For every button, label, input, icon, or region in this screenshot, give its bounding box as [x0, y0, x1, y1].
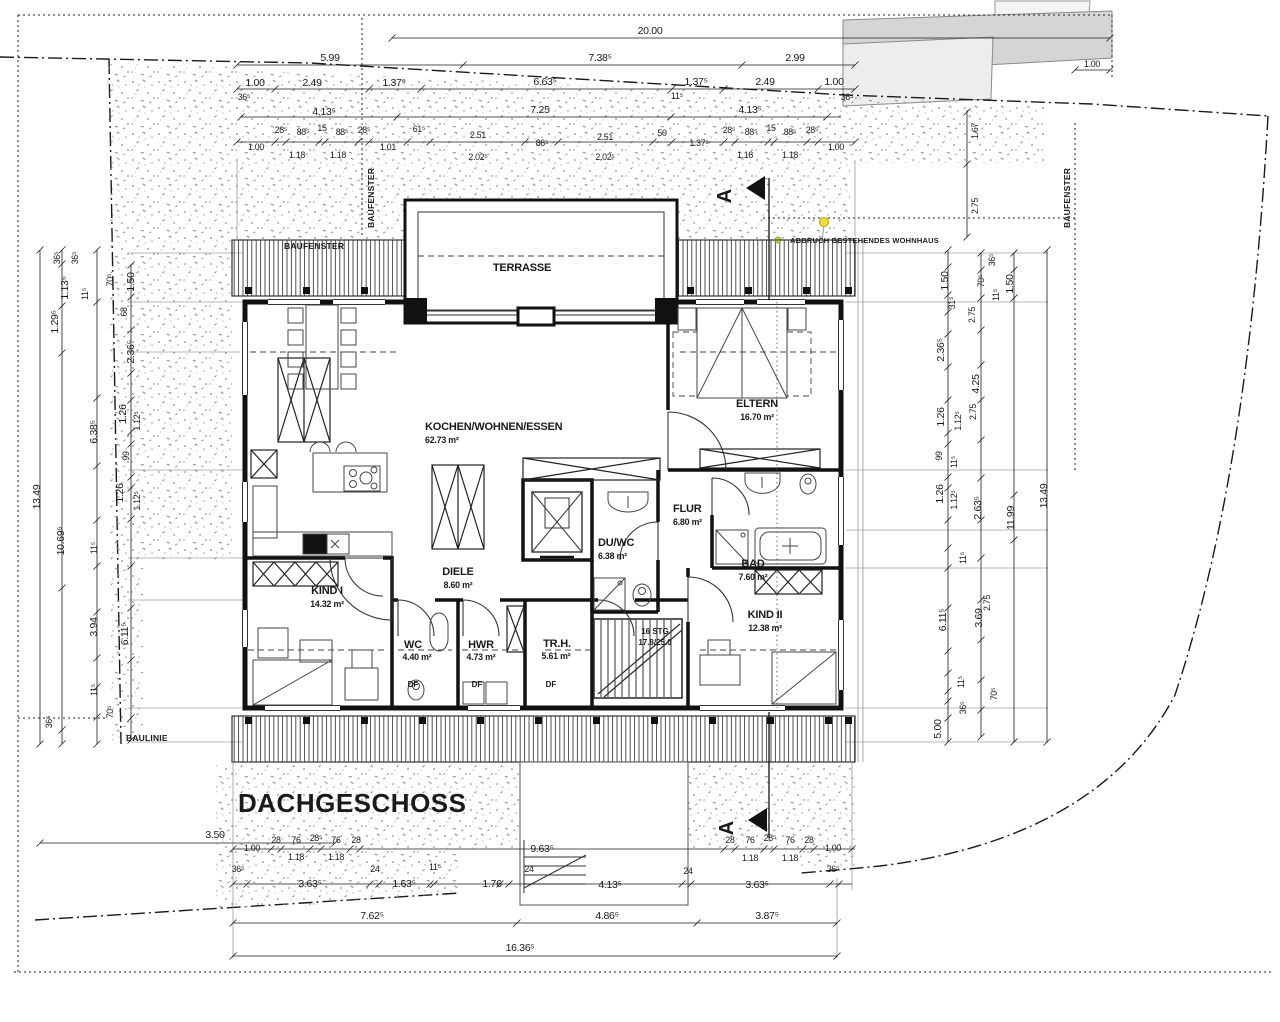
dimension-label: 70⁵ [976, 274, 986, 287]
room-area-wc: 4.40 m² [403, 652, 432, 662]
room-label-kind1: KIND I [311, 585, 343, 597]
window [333, 297, 385, 307]
window [757, 297, 805, 307]
dimension-label: 11.99 [1005, 506, 1017, 530]
dimension-label: 68 [119, 307, 129, 317]
dimension-label: 88⁵ [336, 127, 349, 137]
stairs [594, 619, 682, 698]
dimension-label: 36⁵ [238, 92, 251, 102]
window [240, 322, 250, 395]
dimension-label: 1.18 [328, 852, 344, 862]
dimension-label: 3.87⁵ [755, 910, 778, 922]
dimension-label: 6.11⁵ [937, 609, 949, 632]
room-label-terrasse: TERRASSE [493, 262, 551, 274]
dimension-label: 86⁵ [536, 138, 549, 148]
dimension-label: 2.51 [470, 130, 486, 140]
dimension-label: 1.18 [782, 150, 798, 160]
dimension-label: 28 [271, 835, 281, 845]
room-area-flur: 6.80 m² [673, 517, 702, 527]
df-label-trh: DF [546, 680, 557, 689]
baufenster-label-left: BAUFENSTER [366, 168, 376, 228]
baulinie-label: BAULINIE [126, 733, 168, 743]
dimension-label: 70⁵ [989, 687, 999, 700]
dimension-label: 70⁵ [105, 705, 115, 718]
dimension-label: 2.36⁵ [125, 340, 137, 363]
window [836, 620, 846, 690]
dimension-label: 76 [331, 835, 341, 845]
dimension-label: 1.00 [245, 77, 265, 89]
dimension-label: 6.63⁵ [533, 76, 556, 88]
dimension-label: 10.69⁵ [55, 527, 67, 556]
dimension-label: 11⁵ [949, 455, 959, 468]
dimension-label: 5.00 [932, 719, 944, 739]
room-area-kind1: 14.32 m² [310, 599, 344, 609]
neighbor-buildings [843, 1, 1112, 106]
dimension-label: 1.12⁵ [949, 490, 959, 510]
dimension-label: 3.50 [205, 829, 225, 841]
dimension-label: 2.02⁵ [595, 152, 615, 162]
window [240, 482, 250, 522]
dimension-label: 1.26 [935, 407, 947, 427]
dimension-label: 1.12⁵ [953, 411, 963, 431]
dimension-label: 28 [351, 835, 361, 845]
dimension-label: 1.37⁵ [382, 77, 405, 89]
dimension-label: 1.37⁵ [689, 138, 709, 148]
dimension-label: 76 [291, 835, 301, 845]
dimension-label: 6.11⁵ [119, 623, 131, 646]
dimension-label: 50 [657, 128, 667, 138]
dimension-label: 28⁵ [275, 125, 288, 135]
dimension-label: 4.25 [970, 374, 982, 394]
room-area-hwr: 4.73 m² [467, 652, 496, 662]
baufenster-label-top: BAUFENSTER [284, 241, 344, 251]
dimension-label: 1.37⁵ [684, 76, 707, 88]
baufenster-label-right: BAUFENSTER [1062, 168, 1072, 228]
dimension-label: 36⁵ [827, 864, 840, 874]
dimension-label: 28⁵ [764, 833, 777, 843]
dimension-label: 36⁵ [958, 701, 968, 714]
room-label-hwr: HWR [468, 639, 494, 651]
dimension-label: 4.13⁵ [598, 879, 621, 891]
abbruch-label: ABBRUCH BESTEHENDES WOHNHAUS [790, 236, 939, 245]
dimension-label: 1.18 [742, 853, 758, 863]
room-label-kind2: KIND II [748, 609, 783, 621]
dimension-label: 13.49 [31, 484, 43, 509]
dimension-label: 1.18 [288, 852, 304, 862]
dimension-label: 61⁵ [413, 124, 426, 134]
dimension-label: 15 [317, 123, 327, 133]
dimension-label: 1.50 [939, 271, 951, 291]
dimension-label: 7.62⁵ [360, 910, 383, 922]
room-label-wc: WC [404, 639, 422, 651]
dimension-label: 1.00 [825, 843, 841, 853]
dimension-label: 28 [804, 835, 814, 845]
room-label-diele: DIELE [442, 566, 473, 578]
dimension-label: 16.36⁵ [506, 942, 535, 954]
room-label-eltern: ELTERN [736, 398, 778, 410]
dimension-label: 88⁵ [784, 127, 797, 137]
dimension-label: 4.13⁵ [312, 106, 335, 118]
dimension-label: 11⁵ [80, 287, 90, 300]
dimension-label: 28 [725, 835, 735, 845]
dimension-label: 2.02⁵ [468, 152, 488, 162]
dimension-label: 36⁵ [70, 251, 80, 264]
room-label-duwc: DU/WC [598, 537, 635, 549]
dimension-label: 2.51 [597, 132, 613, 142]
dimension-label: 76 [745, 835, 755, 845]
dimension-label: 11⁵ [89, 683, 99, 696]
dimension-label: 1.12⁵ [132, 491, 142, 511]
floorplan-sheet: A A 20.005.997.38⁵2.991.002.491.37⁵6.63⁵… [0, 0, 1280, 1022]
dimension-label: 31⁵ [947, 296, 957, 309]
dimension-label: 1.67 [970, 123, 980, 139]
dimension-label: 13.49 [1038, 483, 1050, 508]
dimension-label: 88⁵ [745, 127, 758, 137]
dimension-label: 1.00 [244, 843, 260, 853]
window [836, 320, 846, 390]
dimension-label: 11⁵ [429, 862, 442, 872]
room-label-kochen: KOCHEN/WOHNEN/ESSEN [425, 421, 563, 433]
dimension-label: 1.00 [248, 142, 264, 152]
dimension-label: 36⁵ [44, 715, 54, 728]
dimension-label: 24 [370, 864, 380, 874]
dimension-label: 1.29⁵ [49, 310, 61, 333]
dimension-label: 1.63⁵ [392, 878, 415, 890]
dimension-label: 36⁵ [52, 251, 62, 264]
dimension-label: 9.63⁵ [530, 843, 553, 855]
room-area-diele: 8.60 m² [444, 580, 473, 590]
dimension-label: 1.00 [824, 76, 844, 88]
floorplan-drawing: A A 20.005.997.38⁵2.991.002.491.37⁵6.63⁵… [0, 0, 1280, 1022]
dimension-label: 11⁵ [671, 91, 684, 101]
window [240, 610, 250, 647]
dimension-label: 3.69 [973, 608, 985, 628]
room-area-kochen: 62.73 m² [425, 435, 459, 445]
dimension-label: 1.18 [330, 150, 346, 160]
dimension-label: 28⁵ [310, 833, 323, 843]
dimension-label: 1.18 [737, 150, 753, 160]
section-label-bottom: A [716, 821, 738, 835]
dimension-label: 1.00 [828, 142, 844, 152]
window [696, 297, 744, 307]
dimension-label: 76 [785, 835, 795, 845]
dimension-label: 2.99 [785, 52, 805, 64]
room-label-flur: FLUR [673, 503, 702, 515]
dimension-label: 2.49 [302, 77, 322, 89]
dimension-label: 11⁵ [958, 551, 968, 564]
dimension-label: 1.18 [289, 150, 305, 160]
dimension-label: 4.86⁵ [595, 910, 618, 922]
stairs-label-line1: 16 STG [641, 627, 669, 636]
dimension-label: 4.13⁵ [738, 104, 761, 116]
page-title: DACHGESCHOSS [238, 788, 466, 818]
dimension-label: 6.38⁵ [88, 420, 100, 443]
dimension-label: 2.49 [755, 76, 775, 88]
dimension-label: 3.63⁵ [298, 878, 321, 890]
dimension-label: 1.50 [125, 272, 137, 292]
room-area-kind2: 12.38 m² [748, 623, 782, 633]
dimension-label: 99 [934, 451, 944, 461]
dimension-label: 3.94 [88, 617, 100, 637]
dimension-label: 1.76 [482, 878, 502, 890]
dimension-label: 7.25 [530, 104, 550, 116]
dimension-label: 36⁵ [841, 92, 854, 102]
dimension-label: 7.38⁵ [588, 52, 611, 64]
dimension-label: 1.50 [1004, 274, 1016, 294]
dimension-label: 1.26 [117, 404, 129, 424]
df-label-hwr: DF [472, 680, 483, 689]
room-area-bad: 7.60 m² [739, 572, 768, 582]
room-label-bad: BAD [741, 558, 764, 570]
dimension-label: 36⁵ [232, 864, 245, 874]
dimension-label: 2.63⁵ [972, 496, 984, 519]
dimension-label: 2.75 [968, 404, 978, 420]
yellow-pin-icon [820, 218, 829, 227]
dimension-label: 24 [524, 864, 534, 874]
section-label-top: A [714, 189, 736, 203]
dimension-label: 3.63⁵ [745, 879, 768, 891]
dimension-label: 28⁵ [723, 125, 736, 135]
room-area-trh: 5.61 m² [542, 651, 571, 661]
dimension-label: 2.75 [970, 198, 980, 214]
dimension-label: 2.36⁵ [935, 338, 947, 361]
dimension-label: 1.13⁵ [59, 276, 71, 299]
dimension-label: 28⁵ [358, 125, 371, 135]
dimension-label: 99 [121, 451, 131, 461]
window [836, 477, 846, 545]
dimension-label: 2.75 [967, 307, 977, 323]
df-label-wc: DF [408, 680, 419, 689]
dimension-label: 11⁵ [991, 288, 1001, 301]
dimension-label: 5.99 [320, 52, 340, 64]
dimension-label: 28⁵ [806, 125, 819, 135]
dimension-label: 1.18 [782, 853, 798, 863]
dimension-label: 1.26 [934, 484, 946, 504]
dimension-label: 20.00 [638, 25, 663, 37]
dimension-label: 15 [766, 123, 776, 133]
dimension-label: 1.26 [114, 483, 126, 503]
room-area-duwc: 6.38 m² [598, 551, 627, 561]
dimension-label: 88⁵ [297, 127, 310, 137]
dimension-label: 11⁵ [956, 675, 966, 688]
dimension-label: 24 [683, 866, 693, 876]
dimension-label: 11⁵ [89, 541, 99, 554]
room-label-trh: TR.H. [543, 638, 571, 650]
dimension-label: 36⁵ [987, 253, 997, 266]
stairs-label-line2: 17.8/25.0 [638, 638, 672, 647]
dimension-label: 1.12⁵ [132, 411, 142, 431]
room-area-eltern: 16.70 m² [740, 412, 774, 422]
dimension-label: 70⁵ [105, 273, 115, 286]
dimension-label: 1.00 [1084, 59, 1100, 69]
dimension-label: 1.01 [380, 142, 396, 152]
